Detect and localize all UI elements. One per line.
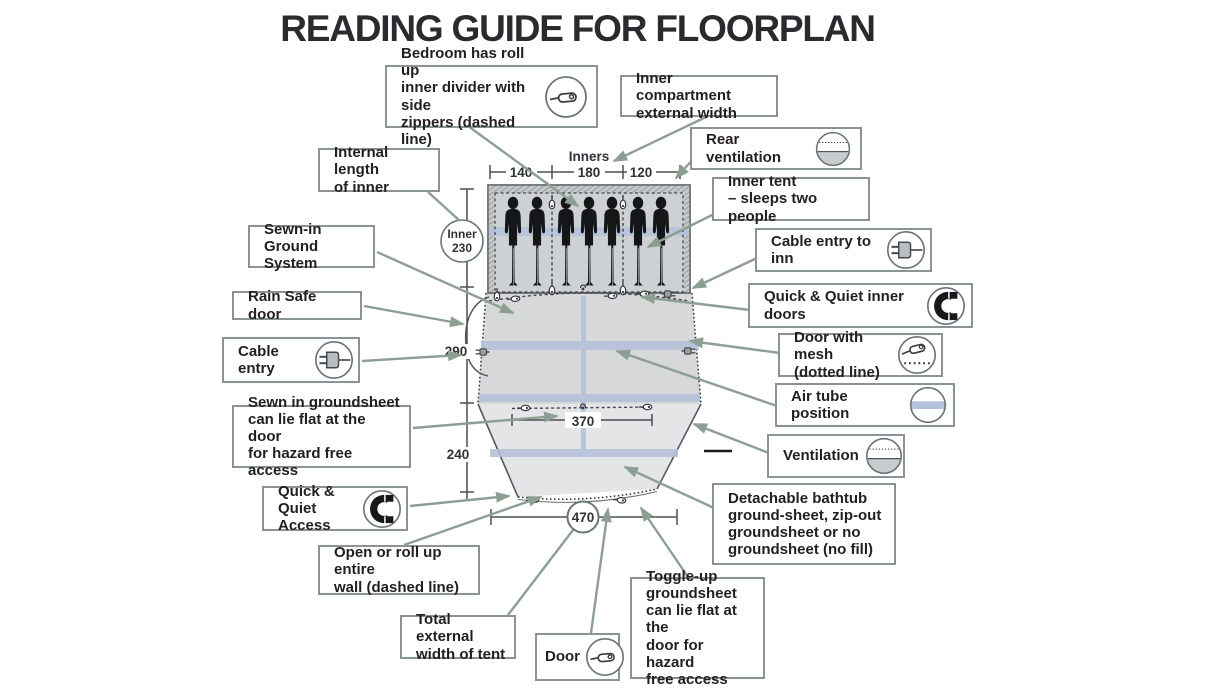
ventilation-icon [864, 436, 904, 476]
plug-icon [314, 340, 354, 380]
callout-door-with-mesh: Door with mesh(dotted line) [778, 333, 943, 377]
callout-sewn-in-ground-system: Sewn-in GroundSystem [248, 225, 375, 268]
inner-width-180: 180 [578, 165, 601, 180]
connector-quick-quiet-access [410, 496, 509, 506]
front-depth-240: 240 [447, 447, 470, 462]
callout-text: Inner tent– sleeps two people [728, 173, 860, 224]
connector-internal-length [428, 192, 460, 221]
inner-circle-label: Inner [447, 227, 477, 241]
callout-ventilation: Ventilation [767, 434, 905, 478]
callout-rain-safe-door: Rain Safe door [232, 291, 362, 320]
callout-door: Door [535, 633, 620, 681]
inner-width-120: 120 [630, 165, 653, 180]
callout-quick-quiet-access: Quick & QuietAccess [262, 486, 408, 531]
connector-ventilation [694, 424, 769, 453]
callout-detachable-bathtub: Detachable bathtubground-sheet, zip-outg… [712, 483, 896, 565]
connector-total-external-width [508, 530, 573, 615]
callout-text: Detachable bathtubground-sheet, zip-outg… [728, 490, 886, 558]
plug-icon [886, 230, 926, 270]
callout-inner-tent: Inner tent– sleeps two people [712, 177, 870, 221]
zipper-icon [544, 75, 588, 119]
connector-toggle-up-groundsheet [641, 508, 688, 577]
callout-text: Rear ventilation [706, 131, 809, 165]
inner-width-140: 140 [510, 165, 533, 180]
callout-bedroom-divider: Bedroom has roll upinner divider with si… [385, 65, 598, 128]
connector-door-with-mesh [690, 341, 780, 353]
callout-air-tube-position: Air tube position [775, 383, 955, 427]
callout-text: Total externalwidth of tent [416, 611, 506, 662]
callout-inner-compartment-width: Inner compartmentexternal width [620, 75, 778, 117]
callout-text: Bedroom has roll upinner divider with si… [401, 45, 539, 148]
mattress-hatch-strip [489, 186, 689, 193]
callout-cable-entry-inner: Cable entry to inn [755, 228, 932, 272]
callout-sewn-in-groundsheet: Sewn in groundsheetcan lie flat at the d… [232, 405, 411, 468]
callout-text: Door [545, 648, 580, 665]
callout-text: Cable entry [238, 343, 309, 377]
callout-text: Quick & QuietAccess [278, 483, 357, 534]
callout-toggle-up-groundsheet: Toggle-upgroundsheetcan lie flat at thed… [630, 577, 765, 679]
callout-text: Toggle-upgroundsheetcan lie flat at thed… [646, 568, 755, 688]
callout-text: Air tube position [791, 388, 903, 422]
callout-text: Quick & Quiet inner doors [764, 288, 921, 322]
inner-door-width-370: 370 [572, 414, 595, 429]
tent-floorplan [466, 185, 701, 503]
inners-label: Inners [569, 149, 610, 164]
callout-text: Sewn-in GroundSystem [264, 221, 365, 272]
callout-text: Sewn in groundsheetcan lie flat at the d… [248, 394, 401, 479]
callout-text: Ventilation [783, 447, 859, 464]
callout-text: Door with mesh(dotted line) [794, 329, 892, 380]
connector-rain-safe-door [364, 306, 463, 324]
callout-text: Rain Safe door [248, 288, 352, 322]
callout-open-roll-wall: Open or roll up entirewall (dashed line) [318, 545, 480, 595]
callout-total-external-width: Total externalwidth of tent [400, 615, 516, 659]
callout-text: Open or roll up entirewall (dashed line) [334, 544, 470, 595]
floorplan-diagram: Inners 140 180 120 Inner 230 290 240 370 [0, 0, 1230, 692]
zipper-icon [585, 637, 625, 677]
magnet-icon [926, 286, 966, 326]
callout-text: Cable entry to inn [771, 233, 891, 267]
callout-internal-length: Internal lengthof inner [318, 148, 440, 192]
callout-text: Inner compartmentexternal width [636, 70, 768, 121]
callout-quick-quiet-inner-doors: Quick & Quiet inner doors [748, 283, 973, 328]
magnet-icon [362, 489, 402, 529]
callout-text: Internal lengthof inner [334, 144, 430, 195]
inner-circle-value: 230 [452, 241, 472, 255]
callout-rear-ventilation: Rear ventilation [690, 127, 862, 170]
zipper-pull-marker [613, 497, 626, 503]
air-tube-band [479, 394, 700, 402]
ventilation-icon [814, 130, 852, 168]
air-tube-band-vertical [581, 296, 586, 454]
total-width-470: 470 [572, 510, 595, 525]
air-tube-band [481, 341, 699, 350]
zipper-dotted-icon [897, 335, 937, 375]
callout-cable-entry: Cable entry [222, 337, 360, 383]
air-tube-icon [908, 385, 948, 425]
